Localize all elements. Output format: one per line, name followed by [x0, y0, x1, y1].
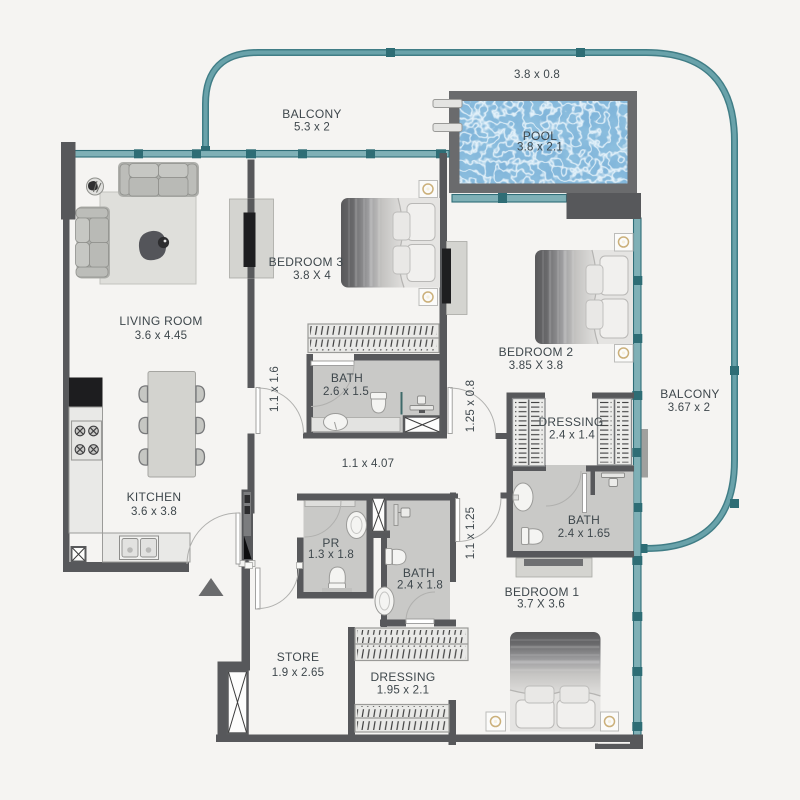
svg-text:5.3 x 2: 5.3 x 2 [294, 122, 330, 134]
svg-text:1.95 x 2.1: 1.95 x 2.1 [377, 685, 430, 697]
svg-text:3.85 X 3.8: 3.85 X 3.8 [509, 360, 563, 372]
svg-text:2.6 x 1.5: 2.6 x 1.5 [323, 386, 369, 398]
svg-text:1.1 x 4.07: 1.1 x 4.07 [342, 458, 395, 470]
svg-text:LIVING ROOM: LIVING ROOM [119, 314, 202, 328]
svg-text:2.4 x 1.4: 2.4 x 1.4 [549, 430, 595, 442]
svg-text:KITCHEN: KITCHEN [127, 490, 182, 504]
svg-text:BATH: BATH [331, 371, 363, 385]
svg-text:BEDROOM 3: BEDROOM 3 [269, 255, 344, 269]
svg-text:DRESSING: DRESSING [538, 415, 603, 429]
svg-text:BEDROOM 2: BEDROOM 2 [499, 345, 574, 359]
svg-text:3.8 X 4: 3.8 X 4 [293, 270, 331, 282]
svg-text:BEDROOM 1: BEDROOM 1 [505, 585, 580, 599]
svg-text:BALCONY: BALCONY [660, 387, 719, 401]
svg-text:BATH: BATH [568, 513, 600, 527]
svg-text:3.7 X 3.6: 3.7 X 3.6 [517, 599, 565, 611]
svg-text:3.6 x 4.45: 3.6 x 4.45 [135, 330, 188, 342]
svg-text:PR: PR [322, 536, 339, 550]
svg-text:BALCONY: BALCONY [282, 107, 341, 121]
svg-text:1.1 x 1.25: 1.1 x 1.25 [465, 507, 477, 560]
svg-text:1.3 x 1.8: 1.3 x 1.8 [308, 549, 354, 561]
svg-text:3.67 x 2: 3.67 x 2 [668, 402, 711, 414]
svg-text:2.4 x 1.65: 2.4 x 1.65 [558, 528, 611, 540]
svg-text:3.8 x 2.1: 3.8 x 2.1 [517, 142, 563, 154]
svg-text:BATH: BATH [403, 566, 435, 580]
svg-text:STORE: STORE [277, 650, 320, 664]
svg-text:1.25 x 0.8: 1.25 x 0.8 [465, 380, 477, 433]
svg-text:2.4 x 1.8: 2.4 x 1.8 [397, 580, 443, 592]
svg-text:3.6 x 3.8: 3.6 x 3.8 [131, 506, 177, 518]
svg-text:3.8 x 0.8: 3.8 x 0.8 [514, 69, 560, 81]
svg-text:DRESSING: DRESSING [370, 670, 435, 684]
svg-text:1.9 x 2.65: 1.9 x 2.65 [272, 667, 325, 679]
svg-text:1.1 x 1.6: 1.1 x 1.6 [269, 366, 281, 412]
